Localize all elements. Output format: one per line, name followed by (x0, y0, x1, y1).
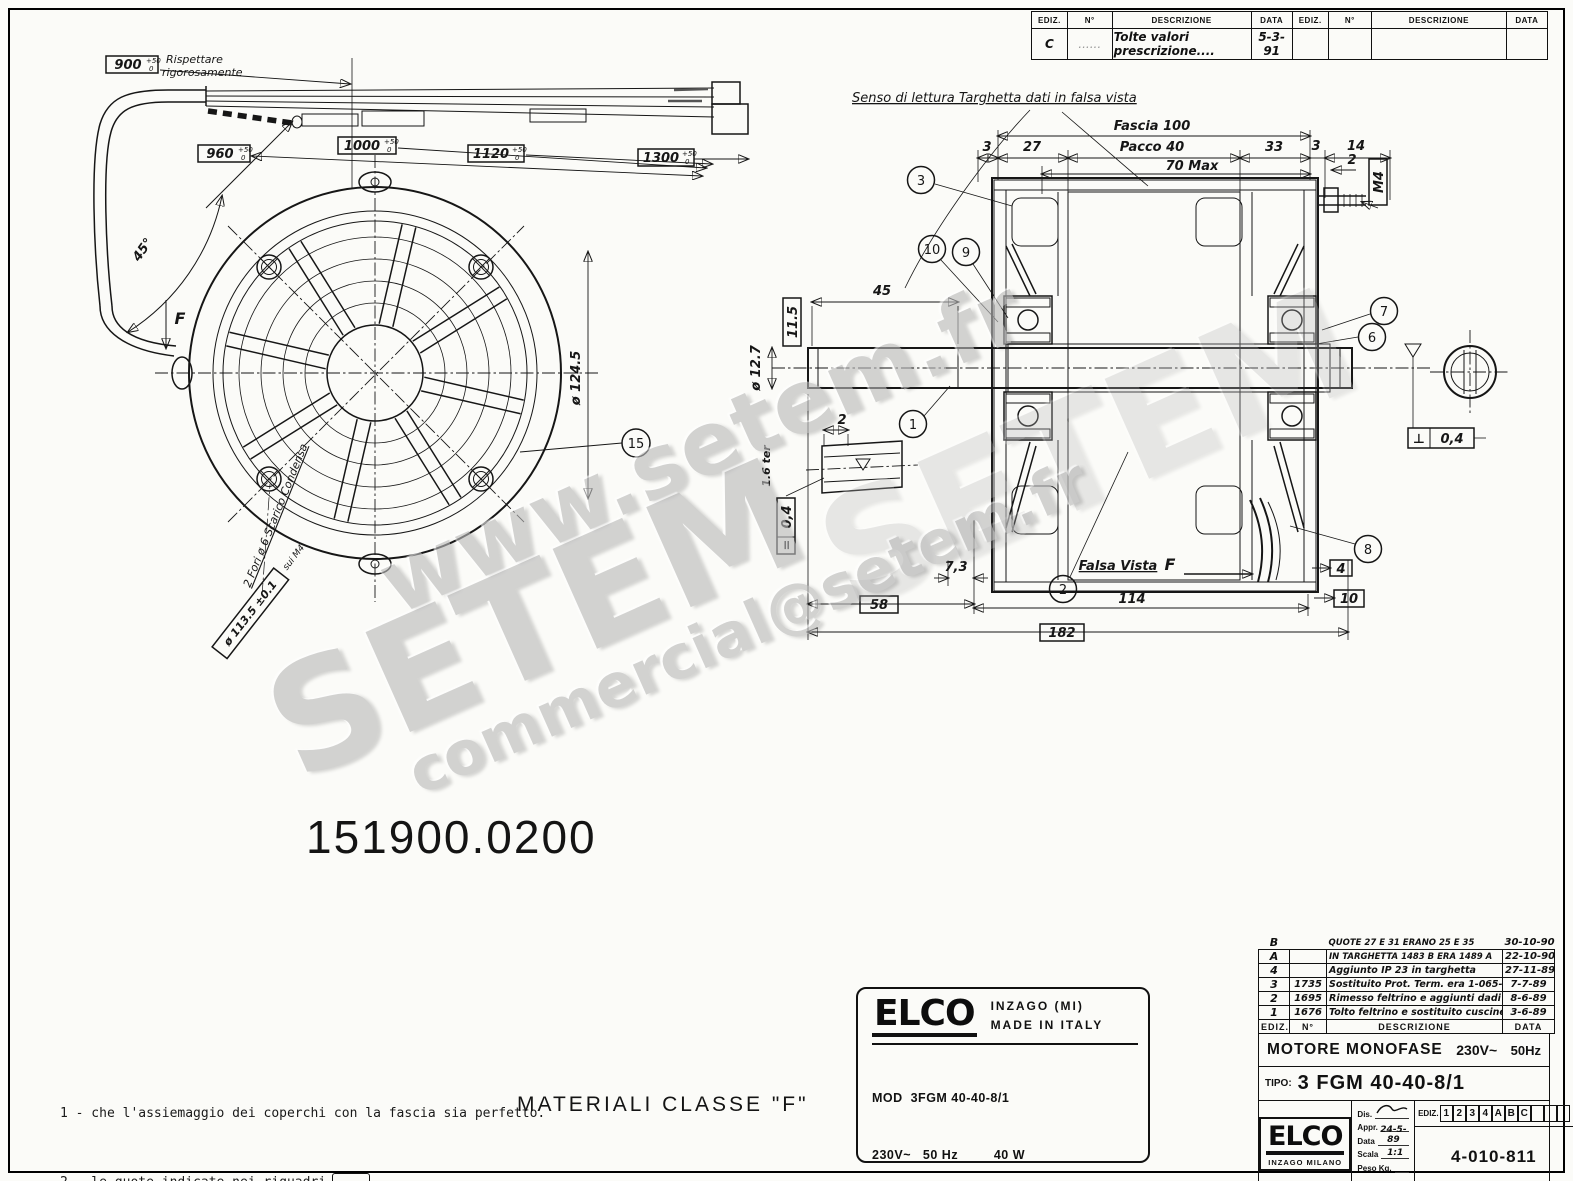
col-data: DATA (1251, 12, 1292, 29)
ediz-box: 4 (1479, 1105, 1492, 1122)
col-descrizione-2: DESCRIZIONE (1372, 12, 1507, 29)
elco-logo: ELCO (872, 997, 977, 1037)
svg-text:0: 0 (515, 154, 520, 162)
fan-front-view: ø 124.5 15 ø 113.5 ±0.1 sui M4 2 Fori ø … (128, 122, 650, 659)
svg-text:1: 1 (909, 418, 917, 433)
note-1: 1 - che l'assiemaggio dei coperchi con l… (60, 1102, 545, 1125)
nameplate-made-in: MADE IN ITALY (991, 1016, 1104, 1035)
ediz-box: B (1505, 1105, 1518, 1122)
svg-text:0,4: 0,4 (780, 505, 795, 528)
approval-cell: Dis. Appr. Data 24-5-89 Scala 1:1 Peso K… (1352, 1101, 1415, 1181)
dim-33: 33 (1265, 140, 1283, 155)
rev-ediz: C (1032, 29, 1068, 60)
ediz-box (1531, 1105, 1544, 1122)
dim-1120: 1120 +50 0 (468, 145, 527, 162)
svg-text:0: 0 (241, 154, 246, 162)
dim-14: 14 (1347, 139, 1365, 154)
elco-logo-small: ELCO (1266, 1124, 1344, 1156)
dis-label: Dis. (1357, 1110, 1372, 1119)
dim-1300: 1300 +50 0 (638, 149, 697, 166)
tipo-label: TIPO: (1265, 1078, 1292, 1089)
dim-27: 27 (1023, 140, 1042, 155)
svg-text:0: 0 (149, 65, 154, 73)
svg-text:+50: +50 (238, 146, 253, 154)
dim-900: 900 +50 0 (106, 56, 161, 73)
history-header: EDIZ. N° DESCRIZIONE DATA (1259, 1020, 1555, 1034)
dim-shaft-diameter: ø 12.7 (749, 344, 764, 391)
shaft-end-detail: ⊥ 0,4 (1405, 330, 1510, 448)
col-n: N° (1067, 12, 1112, 29)
svg-text:2: 2 (1059, 583, 1067, 598)
history-row: B QUOTE 27 E 31 ERANO 25 E 35 30-10-90 (1259, 936, 1555, 950)
callout-9: 9 (953, 239, 1009, 319)
harness-note-1: Rispettare (166, 53, 223, 66)
dim-960: 960 +50 0 (198, 145, 253, 162)
wire-splice-2 (362, 111, 424, 126)
svg-text:900: 900 (114, 58, 141, 73)
harness-note-2: rigorosamente (162, 66, 243, 79)
flatness-tolerance: = 0,4 (777, 498, 795, 554)
motor-frequency: 50Hz (1511, 1043, 1541, 1058)
dim-114: 114 (1118, 592, 1145, 607)
dim-outer-diameter: ø 124.5 (569, 351, 584, 407)
history-row: A IN TARGHETTA 1483 B ERA 1489 A 22-10-9… (1259, 950, 1555, 964)
rev-n: ...... (1067, 29, 1112, 60)
nameplate-city: INZAGO (MI) (991, 997, 1104, 1016)
motor-type: MOTORE MONOFASE (1267, 1041, 1443, 1059)
falsa-vista-label: Falsa Vista (1079, 559, 1158, 574)
svg-text:9: 9 (962, 246, 970, 261)
peso-label: Peso Kg. (1357, 1164, 1391, 1173)
ediz-box: C (1518, 1105, 1531, 1122)
motor-cross-section: Fascia 100 3 27 Pacco 40 33 3 14 70 Max … (749, 91, 1510, 641)
col-ediz-2: EDIZ. (1292, 12, 1328, 29)
tipo-value: 3 FGM 40-40-8/1 (1298, 1072, 1465, 1095)
drain-holes-label: 2 Fori ø 6 Scarico Condensa (241, 442, 311, 589)
falsa-vista-f: F (1165, 555, 1176, 574)
dim-7-3: 7,3 (944, 560, 967, 575)
col-n-2: N° (1328, 12, 1371, 29)
svg-text:+50: +50 (384, 138, 399, 146)
drawing-sheet: ø 124.5 15 ø 113.5 ±0.1 sui M4 2 Fori ø … (0, 0, 1573, 1181)
data-value: 24-5-89 (1378, 1125, 1409, 1146)
note-2: 2 - le quote indicate nei riquadri, (60, 1171, 545, 1181)
history-row: 3 1735 Sostituito Prot. Term. era 1-065-… (1259, 978, 1555, 992)
nameplate-address: INZAGO (MI) MADE IN ITALY (991, 997, 1104, 1037)
callout-3: 3 (908, 167, 1013, 207)
drawing-code: 4-010-811 (1415, 1127, 1572, 1181)
ediz-box: 3 (1466, 1105, 1479, 1122)
riquadro-box-icon (332, 1173, 370, 1181)
dim-3b: 3 (1311, 139, 1320, 154)
svg-text:8: 8 (1364, 543, 1372, 558)
connector-small (712, 82, 740, 104)
data-label: Data (1357, 1137, 1374, 1146)
history-row: 4 Aggiunto IP 23 in targhetta 27-11-89 (1259, 964, 1555, 978)
svg-text:+50: +50 (682, 150, 697, 158)
perpendicularity-symbol: ⊥ (1413, 432, 1425, 447)
dim-3a: 3 (982, 140, 991, 155)
senso-lettura-note: Senso di lettura Targhetta dati in falsa… (852, 91, 1137, 106)
ediz-box (1557, 1105, 1570, 1122)
connector-plug (712, 104, 748, 134)
wire-splice-1 (302, 114, 358, 126)
svg-text:11.5: 11.5 (786, 306, 801, 338)
dim-fascia: Fascia 100 (1114, 119, 1191, 134)
materials-class-label: MATERIALI CLASSE "F" (517, 1093, 809, 1117)
history-row: 1 1676 Tolto feltrino e sostituito cusci… (1259, 1006, 1555, 1020)
appr-label: Appr. (1357, 1123, 1377, 1132)
dim-m4: M4 (1369, 159, 1387, 205)
svg-text:+50: +50 (146, 57, 161, 65)
dim-2-right: 2 (1347, 153, 1356, 168)
revision-history-table: B QUOTE 27 E 31 ERANO 25 E 35 30-10-90 A… (1258, 936, 1555, 1034)
dim-10: 10 (1340, 592, 1358, 607)
edizione-boxes: EDIZ. 1 2 3 4 A B C (1415, 1101, 1572, 1127)
callout-1: 1 (900, 386, 951, 438)
title-block-bottom: ELCO INZAGO MILANO Dis. Appr. Data 24-5-… (1258, 1101, 1550, 1181)
motor-body-outline (992, 178, 1318, 592)
stator-stack (1068, 192, 1240, 580)
nameplate-mod: MOD 3FGM 40-40-8/1 (872, 1089, 1138, 1108)
svg-text:7: 7 (1380, 305, 1388, 320)
col-data-2: DATA (1506, 12, 1547, 29)
wire-splice-3 (530, 109, 586, 122)
title-block: B QUOTE 27 E 31 ERANO 25 E 35 30-10-90 A… (1258, 936, 1550, 1181)
rev-desc: Tolte valori prescrizione.... (1112, 29, 1251, 60)
ediz-box: 1 (1440, 1105, 1453, 1122)
dim-70max: 70 Max (1166, 159, 1219, 174)
svg-text:=: = (780, 540, 795, 551)
history-row: 2 1695 Rimesso feltrino e aggiunti dadi … (1259, 992, 1555, 1006)
svg-text:1120: 1120 (473, 147, 509, 162)
signature-squiggle (1375, 1103, 1409, 1115)
revision-strip-header: EDIZ. N° DESCRIZIONE DATA EDIZ. N° DESCR… (1032, 12, 1548, 29)
dim-182: 182 (1048, 626, 1075, 641)
callout-6: 6 (1316, 324, 1386, 351)
rev-date: 5-3-91 (1251, 29, 1292, 60)
nameplate: ELCO INZAGO (MI) MADE IN ITALY MOD 3FGM … (856, 987, 1150, 1163)
code-cell: EDIZ. 1 2 3 4 A B C 4-010-811 (1415, 1101, 1572, 1181)
svg-text:M4: M4 (1372, 171, 1387, 193)
motor-voltage: 230V~ (1456, 1042, 1497, 1058)
nameplate-header: ELCO INZAGO (MI) MADE IN ITALY (872, 997, 1138, 1045)
revision-row-c: C ...... Tolte valori prescrizione.... 5… (1032, 29, 1548, 60)
dim-pacco: Pacco 40 (1120, 140, 1184, 155)
nameplate-electrical: 230V~ 50 Hz 40 W (872, 1146, 1138, 1165)
dim-45: 45 (872, 284, 891, 299)
logo-city: INZAGO MILANO (1266, 1158, 1344, 1167)
motor-type-row: MOTORE MONOFASE 230V~ 50Hz (1258, 1034, 1550, 1067)
ediz-box: 2 (1453, 1105, 1466, 1122)
dim-1-6-ter: 1.6 ter (760, 445, 773, 487)
dim-bolt-note: sui M4 (281, 543, 307, 572)
shaft-stub-false-view (806, 441, 918, 493)
dim-angle-45: 45° (129, 236, 156, 266)
dim-2-left: 2 (837, 413, 846, 428)
svg-text:1000: 1000 (344, 139, 380, 154)
datum-triangle (1405, 344, 1421, 357)
scala-label: Scala (1357, 1150, 1378, 1159)
perpendicularity-value: 0,4 (1440, 432, 1463, 447)
revision-strip: EDIZ. N° DESCRIZIONE DATA EDIZ. N° DESCR… (1031, 11, 1548, 60)
scala-value: 1:1 (1381, 1148, 1409, 1159)
condenser-bracket (1250, 498, 1280, 582)
svg-text:0: 0 (685, 158, 690, 166)
winding-heads (1012, 198, 1242, 534)
svg-text:10: 10 (924, 243, 941, 258)
dim-1000: 1000 +50 0 (338, 137, 399, 154)
ediz-box: A (1492, 1105, 1505, 1122)
dim-4: 4 (1335, 562, 1345, 577)
callout-15: 15 (628, 437, 645, 452)
cable-harness: 900 +50 0 Rispettare rigorosamente 960 +… (94, 53, 748, 356)
inspection-notes: 1 - che l'assiemaggio dei coperchi con l… (60, 1056, 545, 1181)
nameplate-specs: MOD 3FGM 40-40-8/1 230V~ 50 Hz 40 W 0.7A… (872, 1051, 1138, 1181)
callout-7: 7 (1322, 298, 1398, 331)
col-ediz: EDIZ. (1032, 12, 1068, 29)
title-block-logo-cell: ELCO INZAGO MILANO (1259, 1101, 1352, 1181)
dim-58: 58 (870, 598, 888, 613)
tipo-row: TIPO: 3 FGM 40-40-8/1 (1258, 1067, 1550, 1101)
ediz-box (1544, 1105, 1557, 1122)
dim-11-5: 11.5 (783, 298, 801, 346)
svg-text:6: 6 (1368, 331, 1376, 346)
dis-signature (1375, 1103, 1409, 1119)
ediz-label: EDIZ. (1418, 1109, 1438, 1118)
svg-text:960: 960 (206, 147, 233, 162)
col-descrizione: DESCRIZIONE (1112, 12, 1251, 29)
force-direction-label: F (175, 309, 186, 328)
svg-text:3: 3 (917, 174, 925, 189)
svg-text:+50: +50 (512, 146, 527, 154)
part-number: 151900.0200 (306, 810, 597, 864)
svg-text:0: 0 (387, 146, 392, 154)
svg-text:1300: 1300 (643, 151, 679, 166)
